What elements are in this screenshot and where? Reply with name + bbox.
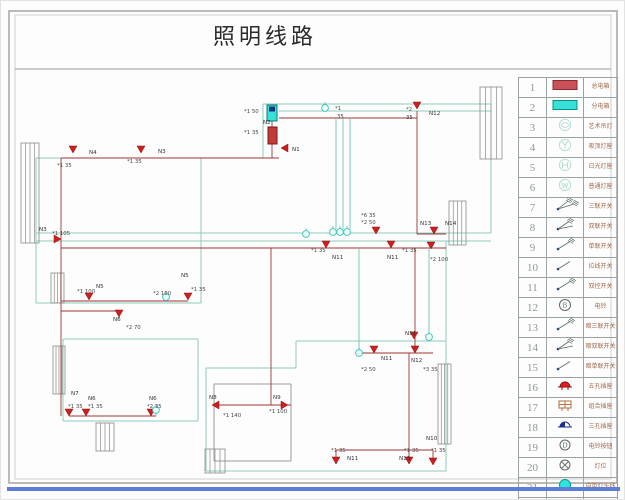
- page-title: 照明线路: [15, 19, 515, 51]
- wire-annotation: *2 70: [126, 325, 141, 331]
- wire-annotation: *1 35: [402, 248, 417, 254]
- legend-row-number: 19: [519, 438, 547, 458]
- sw1-icon: [547, 238, 584, 258]
- legend-row-label: 组合插座: [584, 398, 618, 418]
- lamp-node-icon: [370, 346, 378, 353]
- legend-row-label: 暗三联开关: [584, 318, 618, 338]
- sw0-icon: [547, 258, 584, 278]
- node-label: N11: [387, 255, 399, 261]
- bell-icon: B: [547, 298, 584, 318]
- legend-row: 12B电铃: [519, 298, 618, 318]
- lamp-node-icon: [115, 310, 123, 317]
- wire-annotation: *1: [335, 106, 341, 112]
- wire-annotation: *3 35: [423, 367, 438, 373]
- legend-row-label: 电铃: [584, 298, 618, 318]
- legend-row-number: 11: [519, 278, 547, 298]
- lamp-node-icon: [429, 458, 437, 465]
- rect-red-icon: [547, 78, 584, 98]
- node-label: N6: [113, 317, 121, 323]
- lamp-w-icon: [547, 178, 584, 198]
- wire-annotation: 35: [337, 114, 344, 120]
- node-label: N5: [181, 273, 189, 279]
- legend-row: 15暗单联开关: [519, 358, 618, 378]
- ceiling-lamp-icon: [330, 229, 337, 236]
- legend-row-label: 吸顶灯座: [584, 138, 618, 158]
- lamp-node-icon: [137, 146, 145, 153]
- legend-row-number: 5: [519, 158, 547, 178]
- ceiling-lamp-icon: [337, 229, 344, 236]
- legend-row-number: 2: [519, 98, 547, 118]
- socket-blue-icon: [547, 418, 584, 438]
- sw0c-icon: [547, 358, 584, 378]
- node-label: N13: [399, 456, 411, 462]
- legend-row-number: 7: [519, 198, 547, 218]
- legend-row-number: 14: [519, 338, 547, 358]
- lamp-node-icon: [69, 146, 77, 153]
- lamp-y-icon: [547, 138, 584, 158]
- legend-row: 3艺术吊灯: [519, 118, 618, 138]
- wire-annotation: 35: [406, 115, 413, 121]
- node-label: N12: [429, 111, 440, 117]
- sw2-icon: [547, 218, 584, 238]
- legend-row-label: 拉线开关: [584, 258, 618, 278]
- sw3-icon: [547, 198, 584, 218]
- wire-annotation: *1 35: [431, 448, 446, 454]
- legend-row-number: 6: [519, 178, 547, 198]
- legend-row-label: 分电箱: [584, 98, 618, 118]
- legend-row-number: 13: [519, 318, 547, 338]
- wire-annotation: *2 100: [430, 257, 449, 263]
- legend-row: 4吸顶灯座: [519, 138, 618, 158]
- wire-annotation: *1 35: [57, 163, 72, 169]
- wire-annotation: *1 105: [52, 231, 70, 237]
- wire-annotation: *2 35: [147, 404, 162, 410]
- box-terminal: [269, 107, 275, 112]
- legend-row: 10拉线开关: [519, 258, 618, 278]
- svg-text:B: B: [563, 302, 568, 310]
- lamp-node-icon: [184, 293, 192, 300]
- wire-annotation: *1 35: [191, 287, 206, 293]
- node-label: N12: [411, 358, 422, 364]
- lamp-node-icon: [411, 346, 419, 353]
- sw1b-icon: [547, 278, 584, 298]
- legend-row-number: 15: [519, 358, 547, 378]
- wire-annotation: *1 35: [127, 159, 142, 165]
- legend-row-label: 总电箱: [584, 78, 618, 98]
- node-label: N14: [445, 221, 457, 227]
- wire-annotation: *1 35: [331, 448, 346, 454]
- wire-annotation: *2 50: [361, 220, 376, 226]
- plan-content: N4N3N2N1N12N13N14N11N11N3N5N5N6N7N6N6N8N…: [21, 87, 502, 473]
- lamp-node-icon: [322, 241, 330, 248]
- socket-red-icon: [547, 378, 584, 398]
- wire-annotation: *2: [406, 107, 412, 113]
- sw2c-icon: [547, 338, 584, 358]
- legend-row: 14暗双联开关: [519, 338, 618, 358]
- legend-row: 16五孔插座: [519, 378, 618, 398]
- node-label: N6: [149, 396, 157, 402]
- legend-table: 1总电箱2分电箱3艺术吊灯4吸顶灯座5日光灯座6普通灯座7三联开关8双联开关9单…: [518, 77, 618, 500]
- legend-row: 18三孔插座: [519, 418, 618, 438]
- legend-row: 7三联开关: [519, 198, 618, 218]
- node-label: N10: [426, 436, 438, 442]
- legend-row-label: 单联开关: [584, 238, 618, 258]
- wire-annotation: *2 100: [153, 291, 172, 297]
- wire-annotation: *1 140: [223, 413, 242, 419]
- node-label: N4: [89, 150, 97, 156]
- node-label: N11: [405, 331, 417, 337]
- legend-row-number: 9: [519, 238, 547, 258]
- legend-row-label: 暗双联开关: [584, 338, 618, 358]
- lamp-petal-icon: [547, 118, 584, 138]
- legend-row-number: 16: [519, 378, 547, 398]
- ceiling-lamp-icon: [322, 105, 329, 112]
- lamp-node-icon: [281, 401, 288, 409]
- legend-row: 2分电箱: [519, 98, 618, 118]
- legend-row: 19D电铃按钮: [519, 438, 618, 458]
- legend-row-number: 8: [519, 218, 547, 238]
- legend-row-label: 三孔插座: [584, 418, 618, 438]
- node-label: N11: [332, 255, 344, 261]
- node-label: N3: [158, 149, 166, 155]
- wire-annotation: *2 50: [361, 367, 376, 373]
- wire-annotation: *1 35: [311, 248, 326, 254]
- lamp-node-icon: [65, 409, 73, 416]
- legend-row: 6普通灯座: [519, 178, 618, 198]
- node-label: N13: [420, 221, 432, 227]
- node-label: N5: [96, 284, 104, 290]
- legend-row-label: 日光灯座: [584, 158, 618, 178]
- legend-row-label: 普通灯座: [584, 178, 618, 198]
- ceiling-lamp-icon: [356, 350, 363, 357]
- lamp-node-icon: [332, 457, 340, 464]
- legend-row: 13暗三联开关: [519, 318, 618, 338]
- ceiling-lamp-icon: [344, 229, 351, 236]
- sw1c-icon: [547, 318, 584, 338]
- node-label: N9: [273, 395, 281, 401]
- legend-row-label: 双控开关: [584, 278, 618, 298]
- node-label: N3: [39, 227, 47, 233]
- legend-row: 20灯位: [519, 458, 618, 478]
- node-label: N7: [71, 391, 79, 397]
- node-label: N11: [347, 456, 359, 462]
- bottom-border-strip: [7, 487, 620, 491]
- wire-annotation: *1 50: [244, 109, 259, 115]
- legend-row-number: 17: [519, 398, 547, 418]
- node-label: N8: [209, 395, 217, 401]
- legend-row-number: 12: [519, 298, 547, 318]
- legend-row-label: 三联开关: [584, 198, 618, 218]
- socket-grid-icon: [547, 398, 584, 418]
- legend-row-label: 艺术吊灯: [584, 118, 618, 138]
- legend-row: 17组合插座: [519, 398, 618, 418]
- lamp-node-icon: [281, 144, 288, 152]
- svg-text:D: D: [562, 442, 567, 450]
- legend-row-label: 双联开关: [584, 218, 618, 238]
- legend-row: 1总电箱: [519, 78, 618, 98]
- node-label: N1: [292, 147, 300, 153]
- legend-row-number: 3: [519, 118, 547, 138]
- wire-annotation: *1 35: [244, 130, 259, 136]
- node-label: N2: [263, 120, 271, 126]
- legend-row-number: 20: [519, 458, 547, 478]
- legend-row-label: 暗单联开关: [584, 358, 618, 378]
- legend-row-number: 1: [519, 78, 547, 98]
- node-label: N6: [88, 396, 96, 402]
- main-power-box-icon: [268, 127, 277, 144]
- ceiling-lamp-icon: [426, 334, 433, 341]
- rect-cyan-icon: [547, 98, 584, 118]
- lamp-node-icon: [413, 102, 421, 109]
- legend-row-label: 灯位: [584, 458, 618, 478]
- legend-row-label: 五孔插座: [584, 378, 618, 398]
- drawing-sheet: N4N3N2N1N12N13N14N11N11N3N5N5N6N7N6N6N8N…: [0, 0, 625, 500]
- lamp-h-icon: [547, 158, 584, 178]
- legend-row-label: 电铃按钮: [584, 438, 618, 458]
- legend-row: 8双联开关: [519, 218, 618, 238]
- ceiling-lamp-icon: [303, 231, 310, 238]
- node-label: N11: [381, 356, 393, 362]
- circle-x-icon: [547, 458, 584, 478]
- wire-annotation: *1 100: [77, 289, 96, 295]
- legend-row-number: 18: [519, 418, 547, 438]
- lamp-node-icon: [82, 409, 90, 416]
- legend-row: 9单联开关: [519, 238, 618, 258]
- legend-row-number: 4: [519, 138, 547, 158]
- wire-annotation: *1 100: [269, 409, 288, 415]
- lamp-node-icon: [387, 241, 395, 248]
- legend-row-number: 10: [519, 258, 547, 278]
- lamp-node-icon: [212, 401, 219, 409]
- legend-row: 5日光灯座: [519, 158, 618, 178]
- wire-annotation: *1 35: [68, 404, 83, 410]
- circle-d-icon: D: [547, 438, 584, 458]
- legend-row: 11双控开关: [519, 278, 618, 298]
- wire-annotation: *6 35: [361, 213, 376, 219]
- wire-annotation: *1 35: [404, 448, 419, 454]
- wire-annotation: *1 35: [88, 404, 103, 410]
